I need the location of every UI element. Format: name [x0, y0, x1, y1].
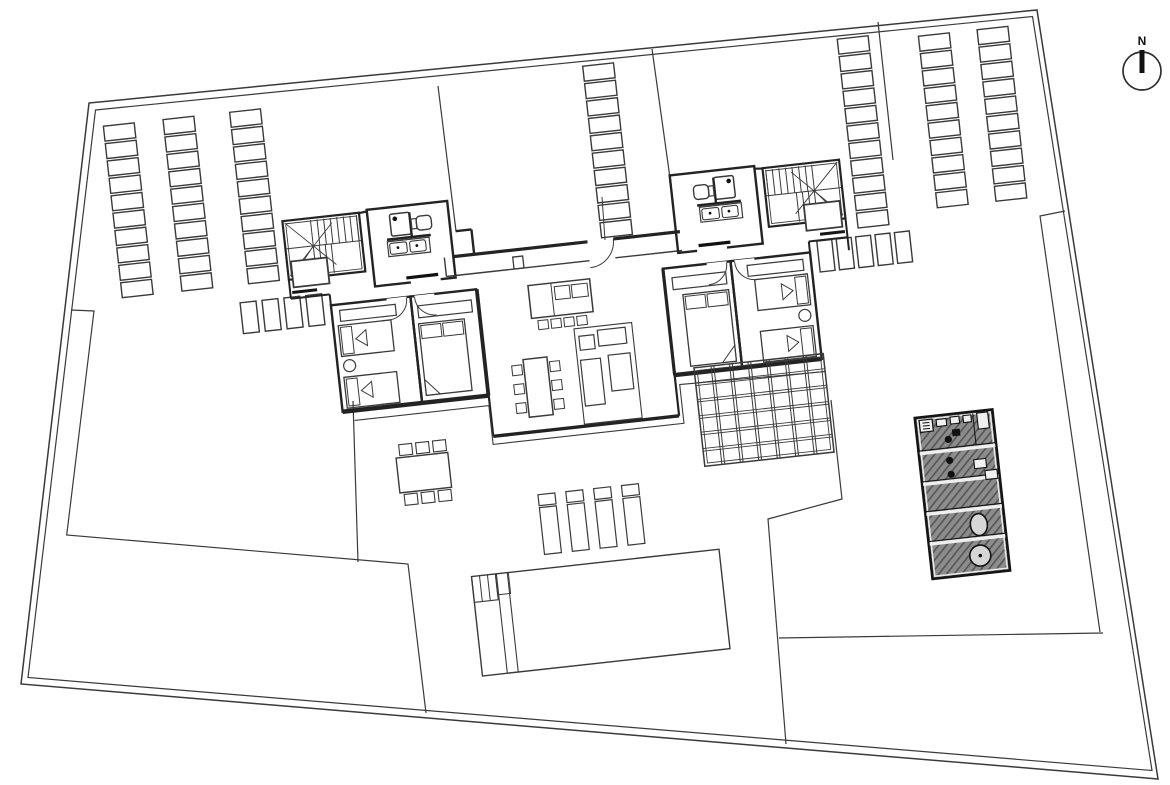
svg-text:N: N	[1138, 34, 1147, 48]
